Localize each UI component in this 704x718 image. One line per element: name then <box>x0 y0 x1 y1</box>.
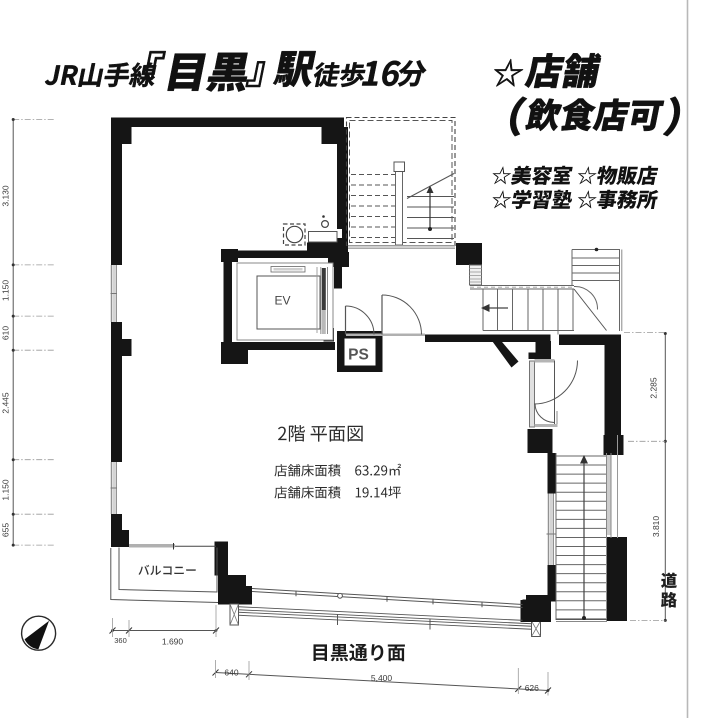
svg-text:610: 610 <box>1 326 11 340</box>
svg-text:2.285: 2.285 <box>649 377 659 399</box>
svg-text:EV: EV <box>274 294 290 308</box>
svg-text:PS: PS <box>348 347 369 364</box>
svg-text:5,400: 5,400 <box>371 673 393 683</box>
svg-text:655: 655 <box>1 523 11 537</box>
svg-text:360: 360 <box>114 636 127 645</box>
svg-text:626: 626 <box>525 683 539 693</box>
svg-text:640: 640 <box>224 667 238 677</box>
svg-text:3.810: 3.810 <box>651 516 661 538</box>
svg-text:2.445: 2.445 <box>1 392 11 414</box>
svg-text:1.150: 1.150 <box>1 479 11 501</box>
svg-text:3.130: 3.130 <box>1 185 11 207</box>
svg-text:1.150: 1.150 <box>1 280 11 302</box>
svg-text:1.690: 1.690 <box>162 636 184 646</box>
